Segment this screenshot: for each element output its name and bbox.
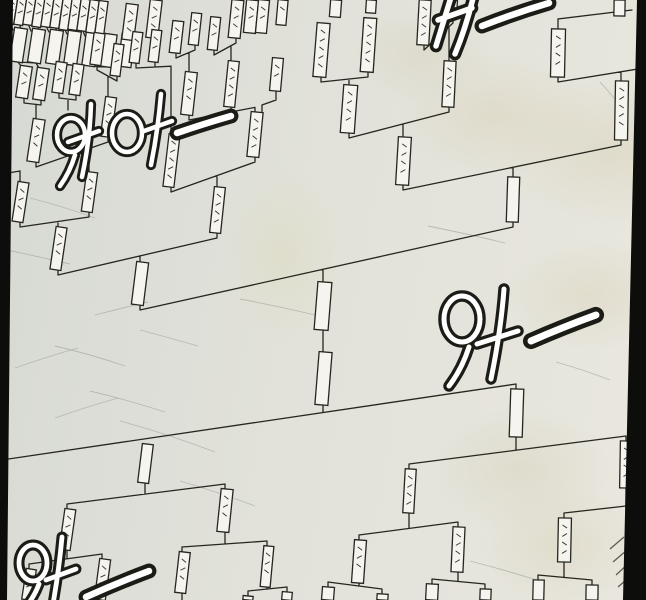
bracket-slot	[247, 112, 263, 158]
bracket-slot	[169, 20, 184, 53]
bracket-slot	[614, 81, 628, 140]
bracket-slot	[417, 0, 431, 45]
bracket-slot	[175, 552, 191, 594]
sfx-cheer-middle-outline	[444, 289, 596, 386]
bracket-slot	[426, 584, 439, 600]
bracket-slot	[163, 134, 180, 188]
bracket-slot	[224, 61, 240, 108]
bracket-slot	[16, 65, 33, 98]
bracket-slot	[329, 0, 341, 17]
bracket-slot	[340, 85, 357, 134]
bracket-slot	[12, 181, 29, 222]
bracket-slot	[442, 61, 456, 108]
bracket-slot	[188, 13, 201, 46]
bracket-slot	[366, 0, 377, 13]
bracket-slot	[377, 594, 388, 600]
bracket-slot	[207, 17, 220, 51]
bracket-slot	[509, 389, 524, 437]
bracket-slot	[313, 23, 330, 78]
bracket-slot	[506, 177, 519, 222]
bracket-slot	[50, 226, 67, 270]
bracket-slot	[586, 585, 598, 600]
bracket-slot	[276, 0, 288, 25]
bracket-slot	[217, 488, 233, 532]
bracket-slot	[480, 589, 491, 600]
bracket-slot	[255, 0, 269, 33]
bracket-slot	[210, 187, 226, 234]
bracket-wall-scene	[0, 0, 646, 600]
bracket-slot	[260, 546, 274, 588]
bracket-slot	[396, 137, 412, 186]
bracket-slot	[46, 29, 64, 65]
panel-border-left	[0, 0, 13, 600]
bracket-slot	[228, 0, 244, 39]
bracket-slot	[550, 29, 565, 77]
bracket-slot	[360, 18, 377, 73]
comic-panel	[0, 0, 646, 600]
bracket-slot	[27, 118, 45, 162]
bracket-slot	[181, 71, 198, 115]
bracket-slot	[28, 28, 46, 64]
bracket-slot	[138, 443, 154, 483]
bracket-slot	[315, 352, 332, 406]
bracket-slot	[131, 261, 148, 305]
bracket-slot	[533, 580, 545, 600]
bracket-slot	[322, 587, 335, 600]
bracket-slot	[64, 30, 82, 65]
bracket-slot	[69, 63, 84, 95]
bracket-slot	[270, 58, 284, 92]
bracket-slot	[282, 592, 293, 600]
bracket-slot	[451, 527, 465, 573]
bracket-slot	[314, 282, 332, 331]
bracket-slot	[52, 61, 67, 93]
bracket-slots	[5, 0, 633, 600]
bracket-slot	[614, 0, 625, 16]
bracket-slot	[33, 67, 50, 100]
bracket-slot	[403, 469, 417, 514]
bracket-slot	[243, 596, 253, 600]
bracket-slot	[351, 540, 366, 584]
bracket-slot	[558, 518, 572, 562]
